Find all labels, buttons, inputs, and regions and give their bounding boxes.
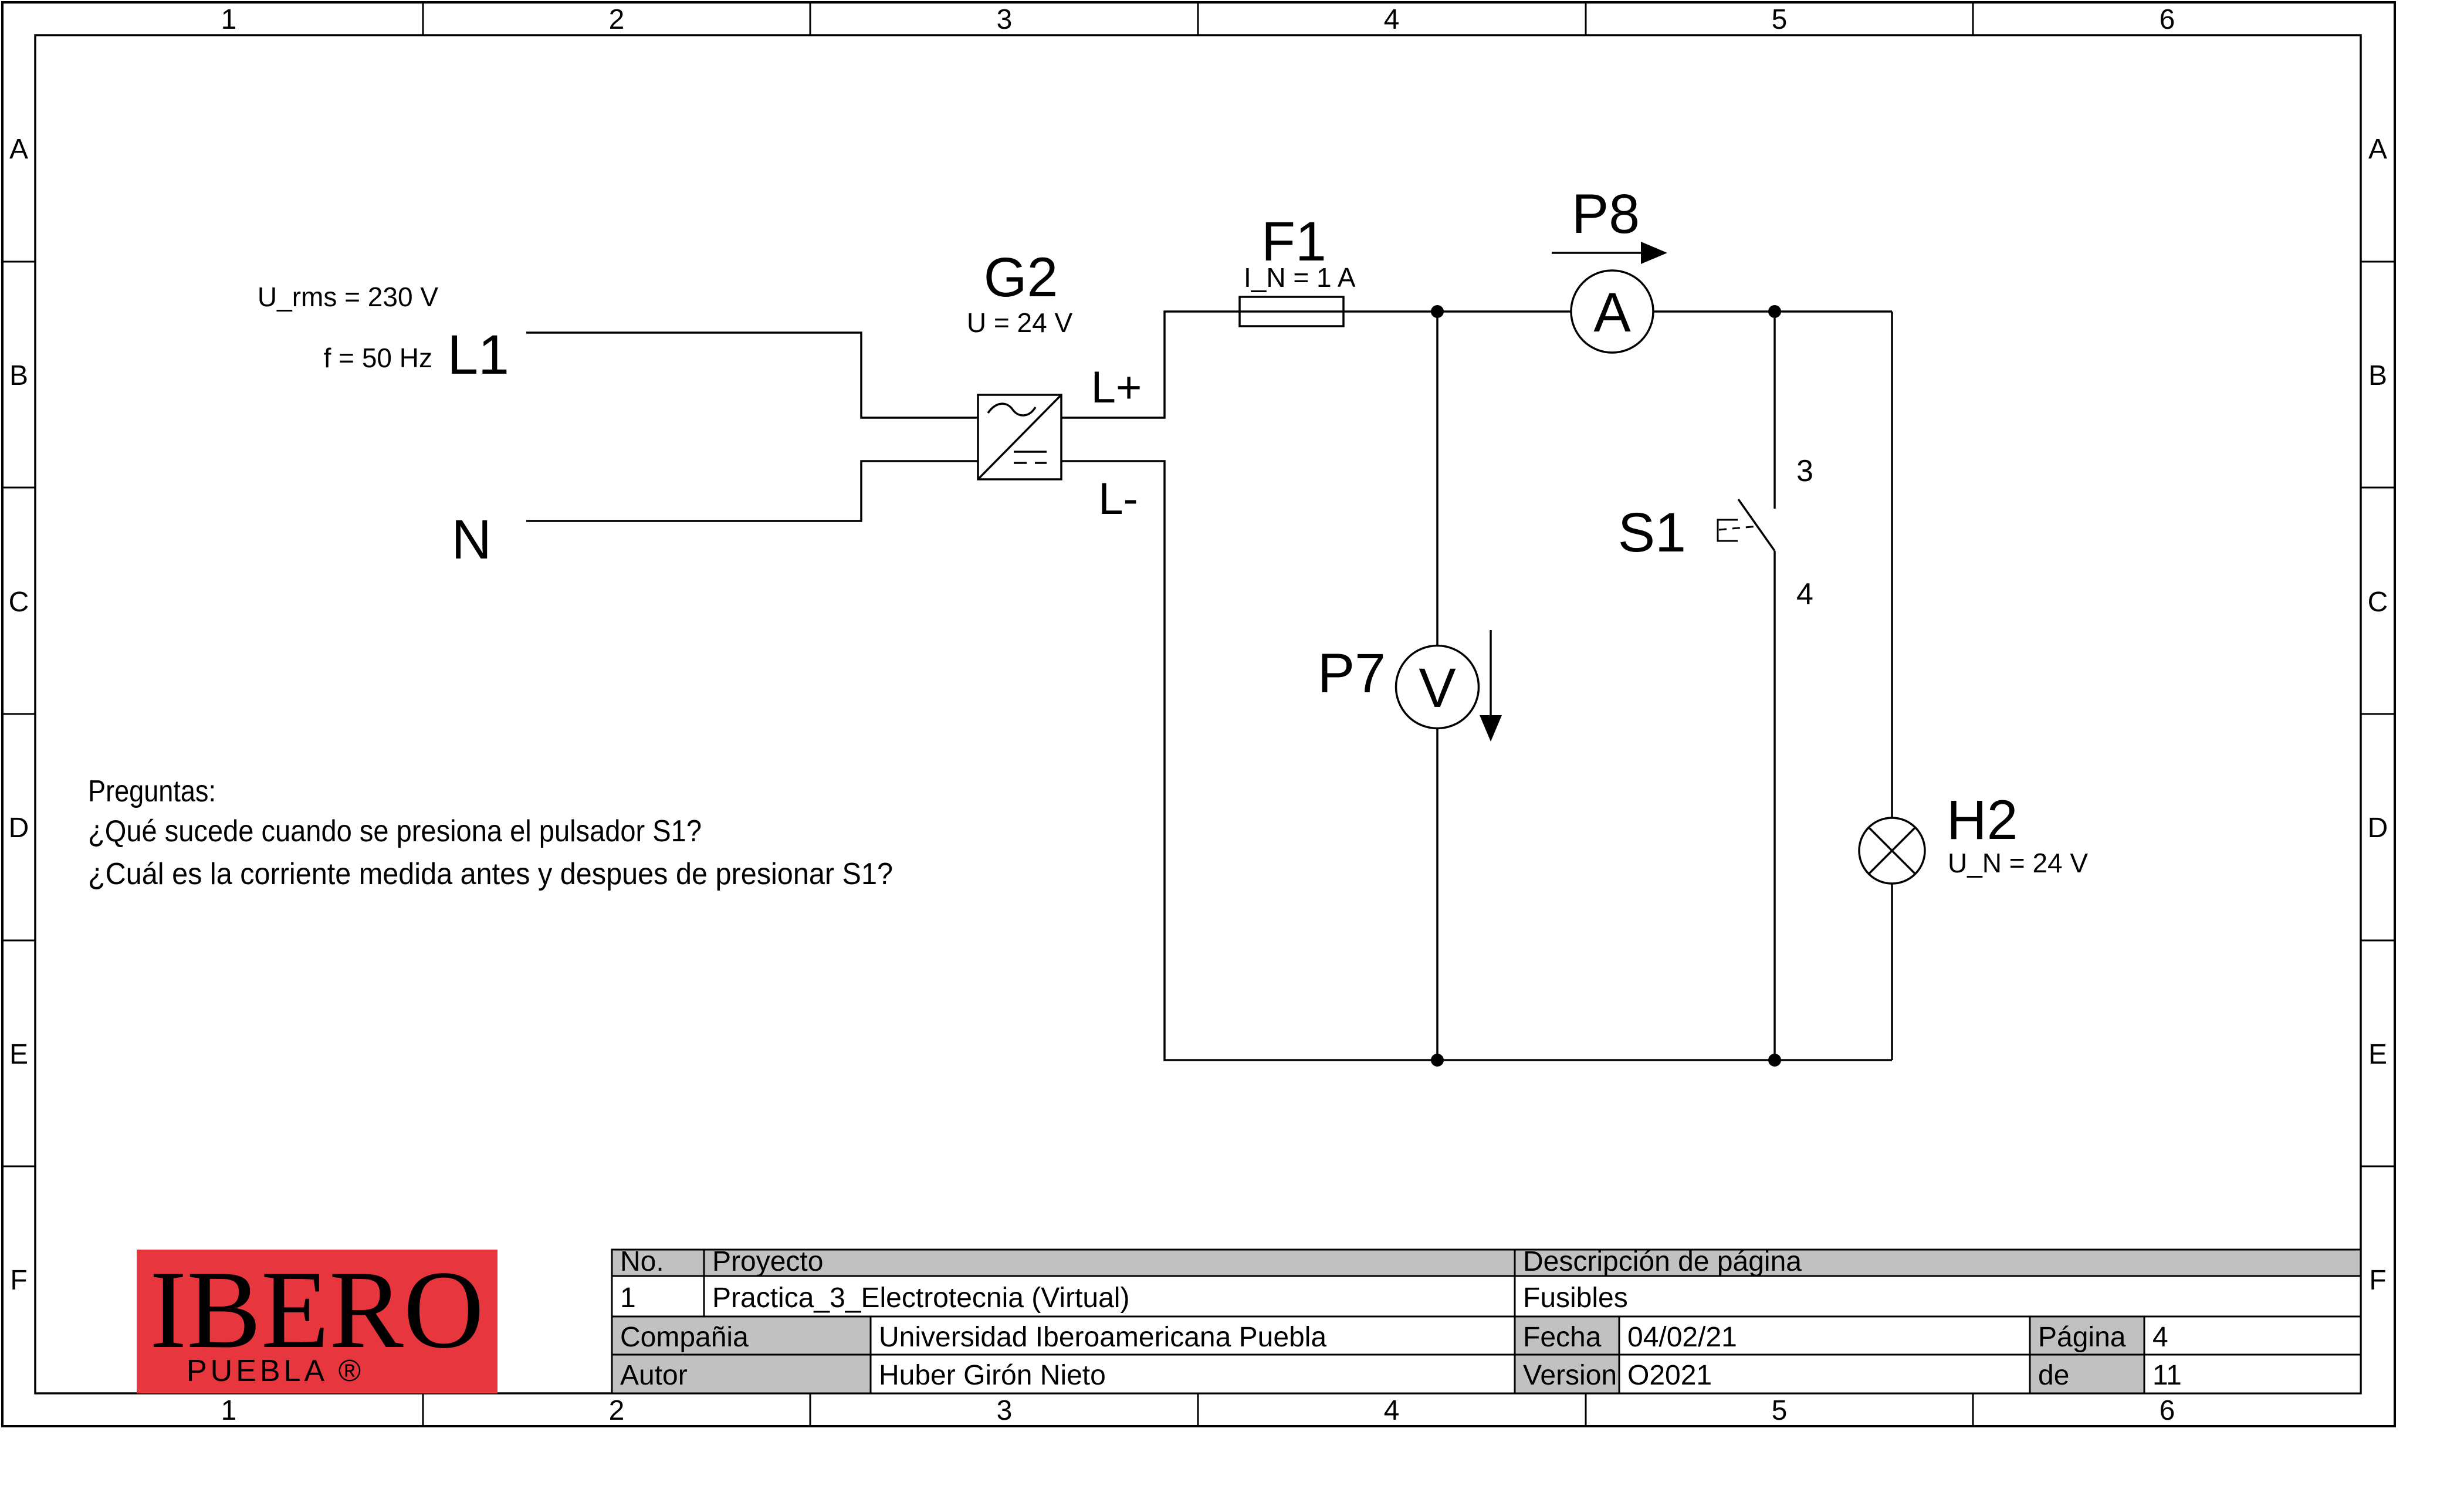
junction-dot [1768,305,1781,318]
wire-l1-feed [526,333,978,418]
source-frequency-label: f = 50 Hz [324,343,432,373]
l1-terminal-label: L1 [447,324,509,386]
questions-title: Preguntas: [88,774,216,808]
row-label: B [9,360,28,391]
frame-inner-border [35,35,2361,1393]
version-value: O2021 [1627,1360,1712,1391]
psu-value-label: U = 24 V [967,307,1073,338]
n-terminal-label: N [451,509,492,571]
lamp-ref-label: H2 [1947,789,2018,851]
row-label: E [9,1039,28,1070]
date-label: Fecha [1523,1322,1602,1353]
row-label: F [10,1265,27,1296]
ammeter-p8: A P8 [1552,183,1667,353]
voltage-direction-arrow-icon [1480,630,1502,742]
pushbutton-s1: S1 3 4 [1618,454,1813,611]
col-label: 2 [609,4,625,35]
junction-dot [1431,305,1444,318]
col-label: 2 [609,1395,625,1426]
col-label: 4 [1384,1395,1400,1426]
page-value: 4 [2152,1322,2168,1353]
col-label: 1 [221,4,237,35]
circuit-wires [526,305,1892,1067]
col-label: 6 [2160,1395,2175,1426]
ibero-logo: IBERO PUEBLA ® [137,1248,497,1393]
of-label: de [2038,1360,2069,1391]
question-2: ¿Cuál es la corriente medida antes y des… [88,857,893,891]
date-value: 04/02/21 [1627,1322,1737,1353]
author-label: Autor [620,1360,688,1391]
voltmeter-ref-label: P7 [1318,642,1386,705]
fuse-value-label: I_N = 1 A [1244,262,1356,293]
col-label: 1 [221,1395,237,1426]
switch-terminal-3-label: 3 [1796,454,1813,488]
company-label: Compañia [620,1322,749,1353]
row-label: C [9,587,29,618]
wire-lminus-bottom-rail [1061,461,1892,1060]
row-label: B [2368,360,2387,391]
lamp-value-label: U_N = 24 V [1948,848,2088,878]
project-label: Proyecto [712,1246,823,1277]
cell-project-label [704,1250,1515,1276]
schematic-drawing: 1 2 3 4 5 6 1 2 3 4 5 6 A B C D E F A B [0,0,2464,1496]
author-value: Huber Girón Nieto [879,1360,1106,1391]
no-value: 1 [620,1282,636,1314]
row-label: F [2369,1265,2386,1296]
cell-page-value [2144,1316,2361,1355]
lamp-h2: H2 U_N = 24 V [1859,789,2088,884]
col-label: 4 [1384,4,1400,35]
description-label: Descripción de página [1523,1246,1802,1277]
col-label: 3 [997,4,1013,35]
of-value: 11 [2152,1360,2182,1391]
source-voltage-label: U_rms = 230 V [258,282,438,312]
project-value: Practica_3_Electrotecnia (Virtual) [712,1282,1129,1314]
company-value: Universidad Iberoamericana Puebla [879,1322,1326,1353]
row-label: A [2368,134,2387,165]
col-label: 5 [1772,4,1788,35]
psu-lminus-label: L- [1098,474,1138,524]
page-label: Página [2038,1322,2126,1353]
switch-terminal-4-label: 4 [1796,577,1813,611]
questions-block: Preguntas: ¿Qué sucede cuando se presion… [88,774,893,891]
frame-outer-border [2,2,2395,1426]
row-label: A [9,134,28,165]
logo-subtext: PUEBLA ® [187,1354,364,1388]
switch-ref-label: S1 [1618,502,1686,564]
col-label: 6 [2160,4,2175,35]
row-label: D [9,813,29,844]
switch-blade [1738,499,1775,551]
question-1: ¿Qué sucede cuando se presiona el pulsad… [88,814,702,848]
switch-actuator-link [1719,526,1758,530]
wire-lplus [1061,312,1240,418]
ammeter-ref-label: P8 [1572,183,1640,245]
row-label: C [2368,587,2388,618]
cell-description-value [1515,1276,2361,1316]
ammeter-letter: A [1593,282,1631,344]
psu-ref-label: G2 [984,246,1058,309]
schematic-sheet: 1 2 3 4 5 6 1 2 3 4 5 6 A B C D E F A B [0,0,2464,1496]
row-label: D [2368,813,2388,844]
col-label: 3 [997,1395,1013,1426]
wire-n-feed [526,461,978,521]
junction-dot [1431,1054,1444,1067]
power-supply-g2: G2 U = 24 V L+ L- [967,246,1142,524]
drawing-frame: 1 2 3 4 5 6 1 2 3 4 5 6 A B C D E F A B [2,2,2395,1426]
ac-source: U_rms = 230 V f = 50 Hz L1 N [258,282,509,571]
voltmeter-p7: V P7 [1318,630,1502,742]
fuse-f1: F1 I_N = 1 A [1240,211,1356,326]
version-label: Version [1523,1360,1617,1391]
row-label: E [2368,1039,2387,1070]
logo-wordmark: IBERO [150,1248,484,1372]
frame-column-ticks [423,2,1973,1426]
description-value: Fusibles [1523,1282,1628,1314]
no-label: No. [620,1246,664,1277]
voltmeter-letter: V [1419,657,1456,719]
junction-dot [1768,1054,1781,1067]
col-label: 5 [1772,1395,1788,1426]
psu-lplus-label: L+ [1091,363,1142,412]
frame-row-ticks [2,262,2395,1166]
